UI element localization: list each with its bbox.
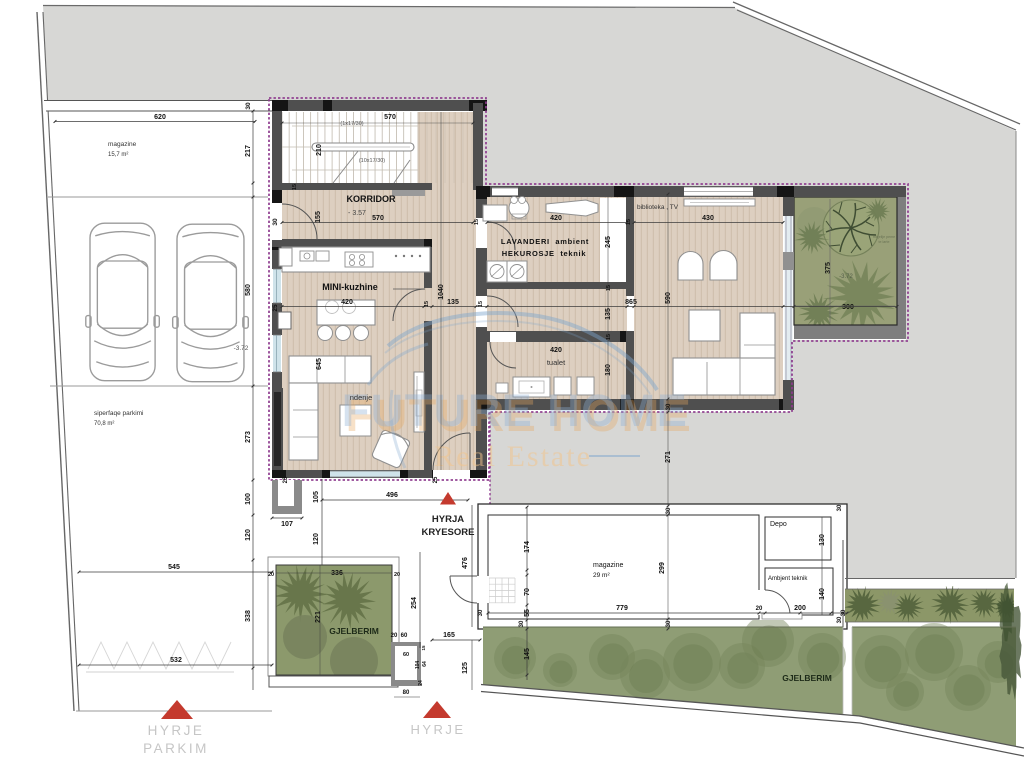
svg-text:GJELBERIM: GJELBERIM: [782, 673, 832, 683]
svg-text:MINI-kuzhine: MINI-kuzhine: [322, 282, 378, 292]
svg-text:1040: 1040: [438, 284, 445, 300]
svg-text:magazine: magazine: [108, 141, 137, 148]
svg-text:165: 165: [443, 632, 455, 639]
svg-text:HYRJE: HYRJE: [410, 722, 465, 737]
svg-text:271: 271: [665, 451, 672, 463]
svg-text:865: 865: [625, 299, 637, 306]
svg-text:siperfaqe parkimi: siperfaqe parkimi: [94, 410, 144, 417]
svg-text:25: 25: [283, 476, 289, 483]
svg-text:PARKIM: PARKIM: [143, 741, 209, 756]
svg-text:135: 135: [605, 308, 612, 320]
svg-text:(10x17/30): (10x17/30): [359, 158, 385, 164]
svg-text:155: 155: [315, 211, 322, 223]
svg-text:25: 25: [433, 476, 439, 483]
svg-text:532: 532: [170, 657, 182, 664]
svg-text:GJELBERIM: GJELBERIM: [329, 626, 379, 636]
svg-text:107: 107: [281, 521, 293, 528]
svg-text:30: 30: [519, 620, 525, 627]
svg-text:30: 30: [837, 616, 843, 623]
svg-text:24: 24: [418, 680, 424, 686]
svg-text:29 m²: 29 m²: [593, 572, 610, 579]
svg-text:70,8 m²: 70,8 m²: [94, 421, 114, 427]
svg-text:60: 60: [403, 652, 409, 658]
svg-text:20: 20: [756, 606, 763, 612]
svg-text:254: 254: [411, 597, 418, 609]
svg-text:64: 64: [422, 661, 428, 667]
svg-text:221: 221: [315, 611, 322, 623]
svg-text:Real Estate: Real Estate: [434, 440, 592, 473]
svg-text:KRYESORE: KRYESORE: [422, 527, 475, 538]
svg-text:55: 55: [524, 609, 531, 617]
svg-text:KORRIDOR: KORRIDOR: [347, 194, 396, 204]
svg-text:LAVANDERI ambient: LAVANDERI ambient: [501, 237, 589, 246]
svg-text:210: 210: [316, 144, 323, 156]
svg-text:245: 245: [605, 236, 612, 248]
svg-text:30: 30: [272, 218, 279, 226]
svg-text:105: 105: [313, 491, 320, 503]
svg-text:30: 30: [837, 504, 843, 511]
svg-text:570: 570: [372, 215, 384, 222]
svg-text:100: 100: [245, 493, 252, 505]
svg-text:125: 125: [462, 662, 469, 674]
svg-text:15: 15: [424, 301, 430, 307]
svg-text:15: 15: [478, 301, 484, 307]
svg-text:15: 15: [292, 184, 298, 190]
svg-text:biblioteka , TV: biblioteka , TV: [637, 204, 679, 211]
svg-text:15: 15: [421, 645, 426, 651]
svg-text:mbjellje peme: mbjellje peme: [873, 235, 895, 239]
svg-text:130: 130: [819, 534, 826, 546]
svg-text:476: 476: [462, 557, 469, 569]
svg-text:430: 430: [702, 215, 714, 222]
svg-text:magazine: magazine: [593, 562, 623, 569]
svg-text:(1x17/30): (1x17/30): [340, 121, 363, 127]
svg-text:70: 70: [524, 588, 531, 596]
svg-text:Depo: Depo: [770, 521, 787, 528]
svg-text:545: 545: [168, 564, 180, 571]
svg-text:te larte: te larte: [879, 240, 890, 244]
svg-text:HYRJA: HYRJA: [432, 514, 464, 525]
svg-text:15: 15: [606, 334, 612, 340]
svg-text:15: 15: [606, 285, 612, 291]
svg-text:496: 496: [386, 492, 398, 499]
svg-text:217: 217: [245, 145, 252, 157]
svg-text:180: 180: [605, 364, 612, 376]
svg-text:140: 140: [819, 588, 826, 600]
svg-text:HEKUROSJE teknik: HEKUROSJE teknik: [502, 249, 587, 258]
svg-text:420: 420: [550, 347, 562, 354]
svg-text:25: 25: [272, 304, 279, 312]
svg-text:HYRJE: HYRJE: [148, 723, 205, 738]
svg-text:30: 30: [666, 403, 672, 410]
svg-text:30: 30: [841, 609, 847, 616]
svg-text:570: 570: [384, 114, 396, 121]
svg-text:336: 336: [331, 570, 343, 577]
svg-text:200: 200: [794, 605, 806, 612]
svg-text:273: 273: [245, 431, 252, 443]
svg-text:779: 779: [616, 605, 628, 612]
svg-text:645: 645: [316, 358, 323, 370]
svg-text:580: 580: [245, 284, 252, 296]
svg-text:-3.72: -3.72: [234, 345, 249, 352]
svg-text:15: 15: [474, 219, 480, 225]
svg-text:30: 30: [245, 102, 252, 110]
svg-text:30: 30: [478, 609, 484, 616]
svg-text:174: 174: [524, 541, 531, 553]
svg-text:135: 135: [447, 299, 459, 306]
svg-text:120: 120: [245, 529, 252, 541]
svg-text:120: 120: [313, 533, 320, 545]
svg-text:104: 104: [415, 661, 421, 670]
svg-text:300: 300: [842, 304, 854, 311]
svg-text:ndenje: ndenje: [350, 393, 373, 402]
svg-text:- 3.57: - 3.57: [348, 210, 366, 217]
svg-text:620: 620: [154, 114, 166, 121]
svg-text:Ambjent teknik: Ambjent teknik: [768, 576, 808, 582]
svg-text:15: 15: [626, 219, 632, 225]
svg-text:145: 145: [524, 648, 531, 660]
svg-text:tualet: tualet: [547, 358, 566, 367]
svg-text:420: 420: [341, 299, 353, 306]
svg-text:80: 80: [403, 690, 410, 696]
svg-text:30: 30: [666, 620, 672, 627]
svg-text:338: 338: [245, 610, 252, 622]
svg-text:375: 375: [825, 262, 832, 274]
svg-text:60: 60: [401, 633, 408, 639]
svg-text:30: 30: [666, 507, 672, 514]
svg-text:20: 20: [268, 572, 274, 578]
svg-text:20: 20: [391, 633, 398, 639]
svg-text:299: 299: [659, 562, 666, 574]
svg-text:-3.72: -3.72: [839, 274, 853, 280]
svg-text:20: 20: [394, 572, 400, 578]
svg-text:15,7 m²: 15,7 m²: [108, 152, 128, 158]
svg-text:420: 420: [550, 215, 562, 222]
svg-text:590: 590: [665, 292, 672, 304]
